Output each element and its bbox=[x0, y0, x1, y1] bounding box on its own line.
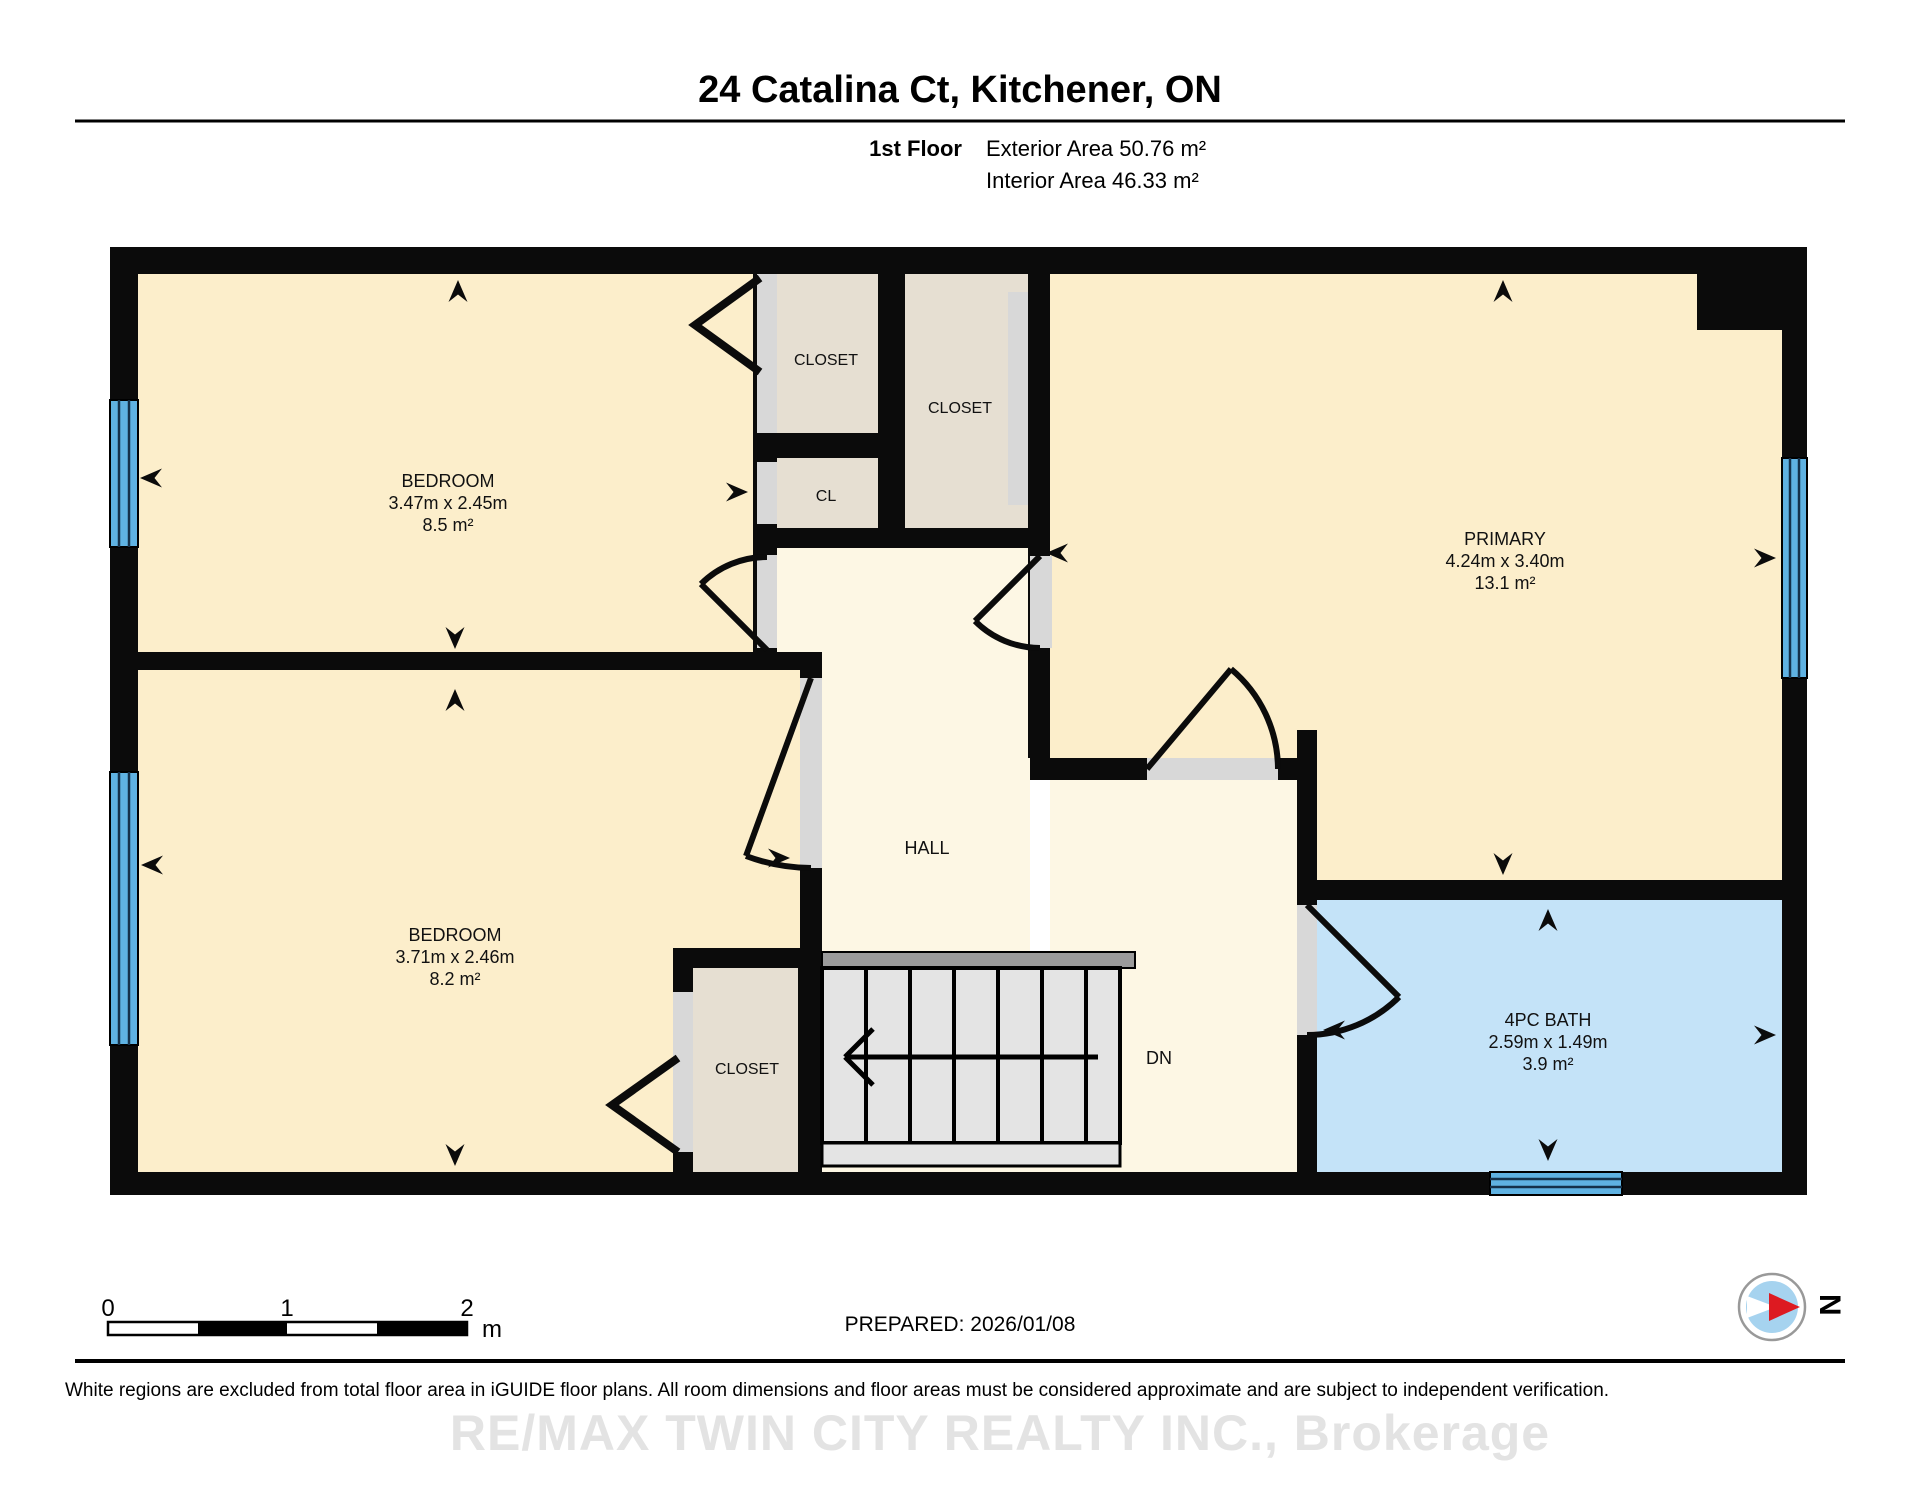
window-bath bbox=[1490, 1172, 1622, 1195]
wall-closets-divider bbox=[878, 247, 905, 548]
opening-closet-small bbox=[757, 462, 777, 524]
window-bedroom-top bbox=[110, 400, 138, 547]
scale-bar-seg2 bbox=[377, 1322, 467, 1335]
hall-floor-mid bbox=[800, 652, 1030, 952]
label-closet-top-left: CLOSET bbox=[794, 352, 858, 369]
scale-2: 2 bbox=[460, 1295, 473, 1322]
wall-closet2-right bbox=[1028, 247, 1050, 758]
opening-primary-door-2 bbox=[1147, 758, 1278, 780]
svg-text:PRIMARY: PRIMARY bbox=[1464, 529, 1546, 549]
label-stairs-dn: DN bbox=[1146, 1048, 1172, 1068]
wall-top bbox=[110, 247, 1807, 274]
hall-floor-upper bbox=[753, 548, 1050, 652]
stairs bbox=[822, 952, 1135, 1166]
svg-text:4.24m x 3.40m: 4.24m x 3.40m bbox=[1445, 551, 1564, 571]
opening-primary-door-1 bbox=[1030, 556, 1052, 648]
svg-text:2.59m x 1.49m: 2.59m x 1.49m bbox=[1488, 1032, 1607, 1052]
scale-bar-seg1 bbox=[198, 1322, 287, 1335]
opening-closet-top-left bbox=[757, 274, 777, 433]
label-closet-small: CL bbox=[816, 488, 837, 505]
wall-right bbox=[1782, 274, 1807, 1195]
brokerage-watermark: RE/MAX TWIN CITY REALTY INC., Brokerage bbox=[450, 1405, 1550, 1461]
window-bedroom-bottom bbox=[110, 772, 138, 1045]
wall-between-bedrooms bbox=[138, 652, 822, 670]
svg-text:3.9 m²: 3.9 m² bbox=[1522, 1054, 1573, 1074]
wall-closet-bottom-right bbox=[798, 948, 822, 1172]
scale-bar: 0 1 2 m bbox=[101, 1295, 502, 1343]
stairs-bottom-rail bbox=[822, 1143, 1120, 1166]
scale-1: 1 bbox=[280, 1295, 293, 1322]
label-hall: HALL bbox=[904, 838, 949, 858]
header: 24 Catalina Ct, Kitchener, ON 1st Floor … bbox=[75, 69, 1845, 193]
svg-text:4PC BATH: 4PC BATH bbox=[1505, 1010, 1592, 1030]
opening-closet-top-right bbox=[1008, 292, 1028, 505]
svg-text:13.1 m²: 13.1 m² bbox=[1474, 573, 1535, 593]
window-primary bbox=[1782, 458, 1807, 678]
scale-unit: m bbox=[482, 1316, 502, 1343]
bedroom-top-floor bbox=[138, 274, 757, 652]
opening-bedroom-top-door bbox=[757, 555, 777, 648]
scale-0: 0 bbox=[101, 1295, 114, 1322]
floorplan-page: 24 Catalina Ct, Kitchener, ON 1st Floor … bbox=[0, 0, 1920, 1484]
svg-text:BEDROOM: BEDROOM bbox=[408, 925, 501, 945]
interior-area: Interior Area 46.33 m² bbox=[986, 168, 1199, 193]
svg-text:8.2 m²: 8.2 m² bbox=[429, 969, 480, 989]
opening-closet-bottom bbox=[673, 992, 693, 1152]
label-closet-bottom: CLOSET bbox=[715, 1061, 779, 1078]
stairs-top-rail bbox=[822, 952, 1135, 968]
opening-bath-door bbox=[1297, 905, 1317, 1035]
floor-label: 1st Floor bbox=[869, 136, 962, 161]
label-closet-top-right: CLOSET bbox=[928, 400, 992, 417]
wall-left bbox=[110, 247, 138, 1195]
svg-text:8.5 m²: 8.5 m² bbox=[422, 515, 473, 535]
page-title: 24 Catalina Ct, Kitchener, ON bbox=[698, 69, 1222, 111]
exterior-area: Exterior Area 50.76 m² bbox=[986, 136, 1206, 161]
floorplan-svg: 24 Catalina Ct, Kitchener, ON 1st Floor … bbox=[0, 0, 1920, 1484]
compass: N bbox=[1739, 1274, 1846, 1340]
prepared-date: PREPARED: 2026/01/08 bbox=[845, 1313, 1076, 1336]
svg-text:3.47m x 2.45m: 3.47m x 2.45m bbox=[388, 493, 507, 513]
svg-text:3.71m x 2.46m: 3.71m x 2.46m bbox=[395, 947, 514, 967]
footer: White regions are excluded from total fl… bbox=[65, 1361, 1845, 1461]
wall-closet-bottom-top bbox=[673, 948, 822, 968]
wall-primary-bath bbox=[1317, 880, 1782, 900]
disclaimer-text: White regions are excluded from total fl… bbox=[65, 1380, 1609, 1401]
compass-north-label: N bbox=[1813, 1294, 1846, 1316]
svg-text:BEDROOM: BEDROOM bbox=[401, 471, 494, 491]
